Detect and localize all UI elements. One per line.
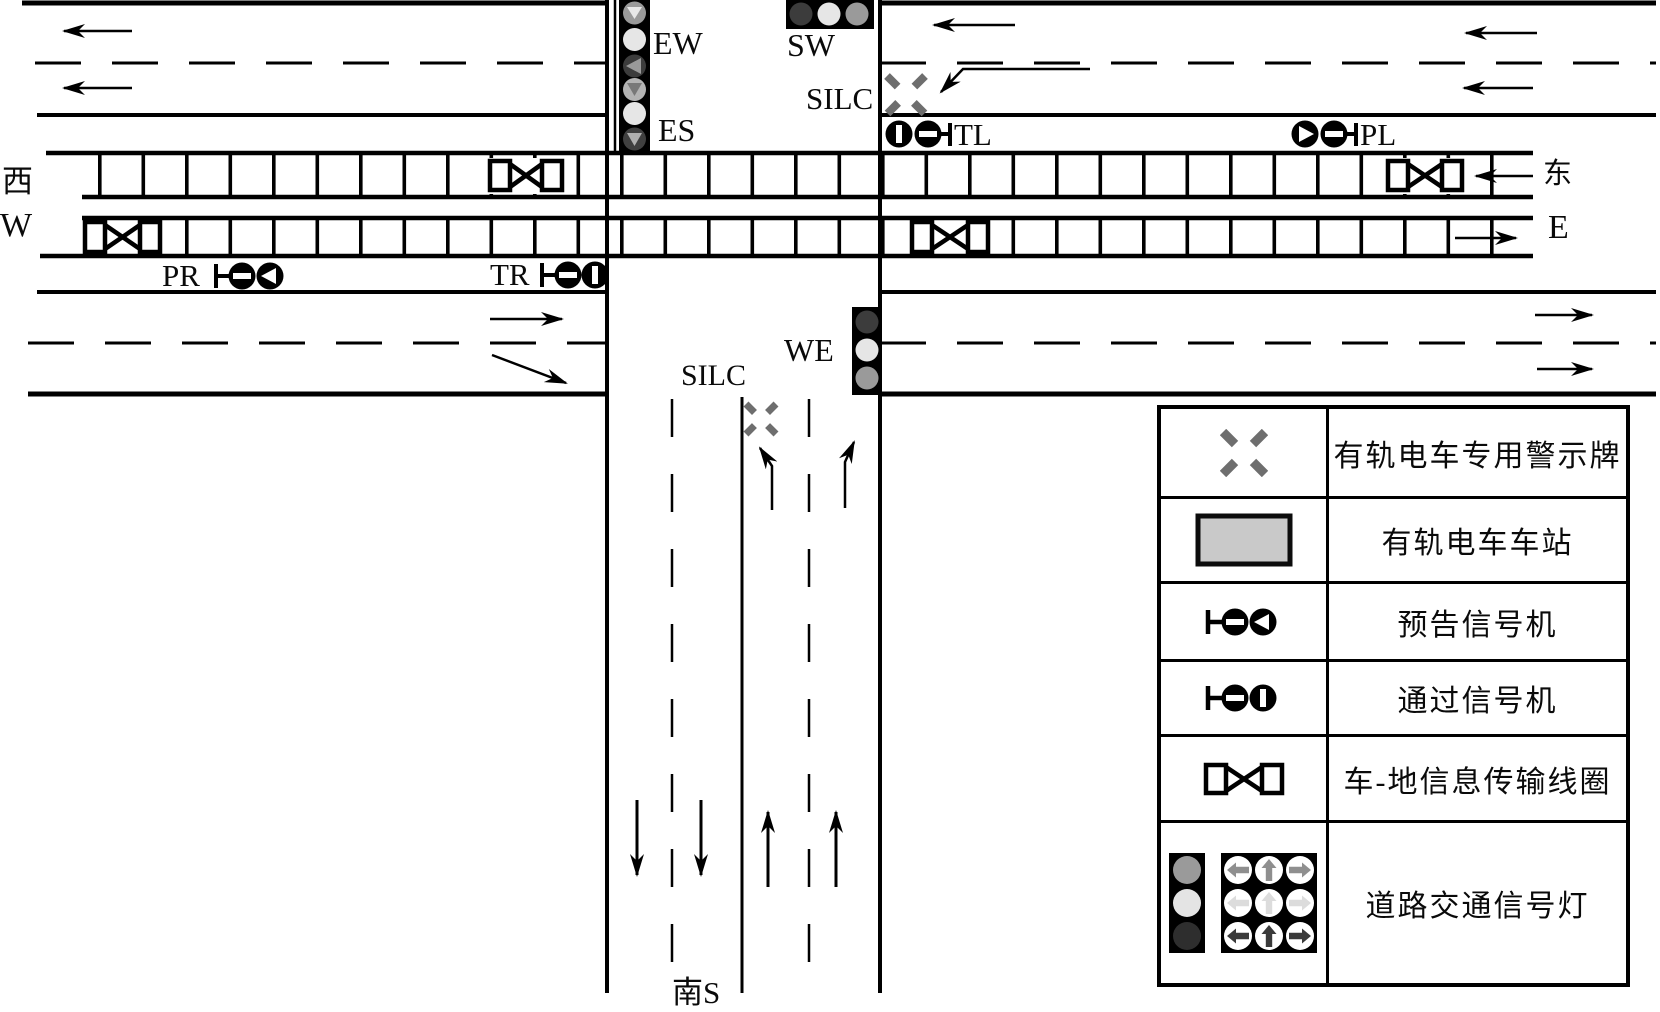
info-loop-track1-east	[1385, 158, 1465, 194]
road-traffic-light-icon	[1161, 820, 1329, 983]
tram-station-icon	[1161, 496, 1329, 581]
traffic-light-we	[852, 307, 882, 395]
label-signal-ew: EW	[653, 27, 703, 59]
lower-road-arrows	[490, 315, 1592, 383]
legend-label: 通过信号机	[1329, 659, 1626, 734]
label-signal-pr: PR	[162, 260, 200, 291]
vertical-road-arrows	[637, 442, 854, 887]
info-loop-track2-east	[909, 221, 991, 253]
signal-pl	[1292, 121, 1357, 148]
info-loop-track1-mid	[487, 158, 565, 194]
compass-west-cn: 西	[2, 166, 33, 197]
label-silc-north: SILC	[806, 83, 873, 114]
signal-pr	[216, 263, 284, 290]
legend-label: 预告信号机	[1329, 581, 1626, 659]
legend-table: 有轨电车专用警示牌 有轨电车车站 预告信号机 通过信号机	[1157, 405, 1630, 987]
compass-east-cn: 东	[1543, 160, 1572, 189]
signal-tr	[542, 262, 609, 289]
tram-tracks	[40, 153, 1533, 256]
legend-label: 有轨电车车站	[1329, 496, 1626, 581]
diagram-canvas: 西 W 东 E 南S EW ES SW WE SILC SILC TL PL P…	[0, 0, 1660, 1012]
tram-warning-sign-icon	[1161, 409, 1329, 496]
tram-warning-sign-south	[746, 404, 776, 434]
tram-warning-sign-north	[887, 76, 925, 114]
label-signal-sw: SW	[787, 29, 835, 61]
lower-road	[28, 292, 1656, 394]
info-loop-track2-west	[82, 221, 164, 253]
label-signal-pl: PL	[1360, 119, 1396, 150]
traffic-light-ew-es	[619, 0, 650, 152]
compass-west-en: W	[0, 209, 32, 243]
signal-tl	[886, 121, 951, 148]
legend-label: 道路交通信号灯	[1329, 820, 1626, 983]
compass-south: 南S	[672, 977, 720, 1008]
legend-label: 有轨电车专用警示牌	[1329, 409, 1626, 496]
label-silc-south: SILC	[681, 361, 746, 391]
legend-label: 车-地信息传输线圈	[1329, 734, 1626, 820]
label-signal-we: WE	[784, 334, 834, 366]
compass-east-en: E	[1548, 211, 1569, 245]
passing-signal-icon	[1161, 659, 1329, 734]
left-turn-arrow	[760, 448, 772, 510]
track2-ties	[96, 219, 1530, 256]
warning-pointer-arrow	[941, 69, 1090, 92]
label-signal-tr: TR	[490, 259, 530, 290]
advance-signal-icon	[1161, 581, 1329, 659]
label-signal-es: ES	[658, 114, 695, 146]
label-signal-tl: TL	[954, 119, 992, 150]
traffic-light-sw	[786, 0, 874, 29]
through-arrow	[845, 442, 854, 508]
train-ground-loop-icon	[1161, 734, 1329, 820]
track1-ties	[96, 155, 1530, 197]
